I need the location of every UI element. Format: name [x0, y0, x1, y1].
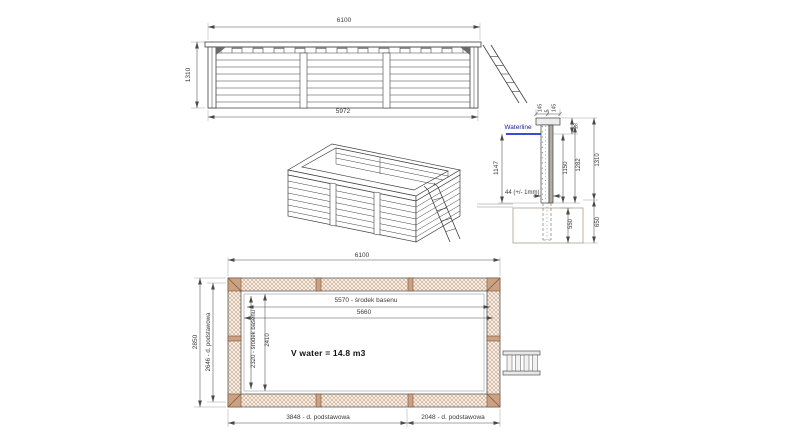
- section-dim-inner-height: 1150: [563, 162, 569, 175]
- plan-dim-width-center: 2320 - środek basenu: [251, 310, 257, 368]
- elevation-dim-width-top: 6100: [337, 18, 351, 25]
- section-dim-freeboard: 28: [575, 123, 580, 129]
- elevation-dim-width-bottom: 5972: [336, 109, 350, 116]
- plan-ladder: [503, 351, 540, 375]
- elevation-dimension-lines: [191, 23, 480, 121]
- plan-dim-height-base: 2646 - d. podstawowa: [206, 313, 212, 372]
- section-view: [477, 109, 598, 243]
- section-ground: [477, 204, 513, 207]
- plan-dim-height-outer: 2850: [193, 335, 200, 349]
- plan-dim-length-inner: 5660: [357, 310, 371, 317]
- plan-volume-note: V water = 14.8 m3: [291, 349, 366, 358]
- section-dim-water-depth: 1147: [494, 161, 501, 175]
- waterline-label: Waterline: [504, 125, 531, 132]
- plan-dim-length-center: 5570 - środek basenu: [335, 298, 398, 305]
- section-wall: [541, 125, 553, 203]
- drawing-canvas: [0, 0, 794, 446]
- plan-dim-base-left: 3848 - d. podstawowa: [286, 415, 350, 422]
- elevation-view: [191, 23, 527, 121]
- section-dim-cap-middle: 5: [546, 110, 551, 113]
- plan-dim-width-inner: 2410: [265, 333, 271, 346]
- plan-dim-base-right: 2048 - d. podstawowa: [421, 415, 485, 422]
- section-wall-below-ground: [543, 203, 551, 240]
- plan-dim-width-top: 6100: [355, 253, 369, 260]
- pool-technical-drawing: 6100 1310 5972 145 5 145 28 Waterline 11…: [0, 0, 794, 446]
- elevation-planks: [216, 60, 470, 102]
- section-dim-outer-height: 1282: [576, 158, 582, 171]
- section-dim-below-ground: 550: [568, 219, 574, 229]
- elevation-ladder: [483, 45, 527, 103]
- section-dim-cap-left: 145: [539, 104, 544, 112]
- plan-view: [194, 257, 540, 427]
- section-dim-foundation-depth: 650: [595, 217, 601, 227]
- section-dim-total-height: 1310: [595, 153, 601, 166]
- elevation-dim-height-left: 1310: [186, 68, 193, 82]
- section-cap: [536, 118, 560, 125]
- isometric-view: [288, 144, 460, 242]
- section-dim-cap-right: 145: [553, 104, 558, 112]
- section-dim-wall-note: 44 (+/- 1mm): [505, 190, 540, 196]
